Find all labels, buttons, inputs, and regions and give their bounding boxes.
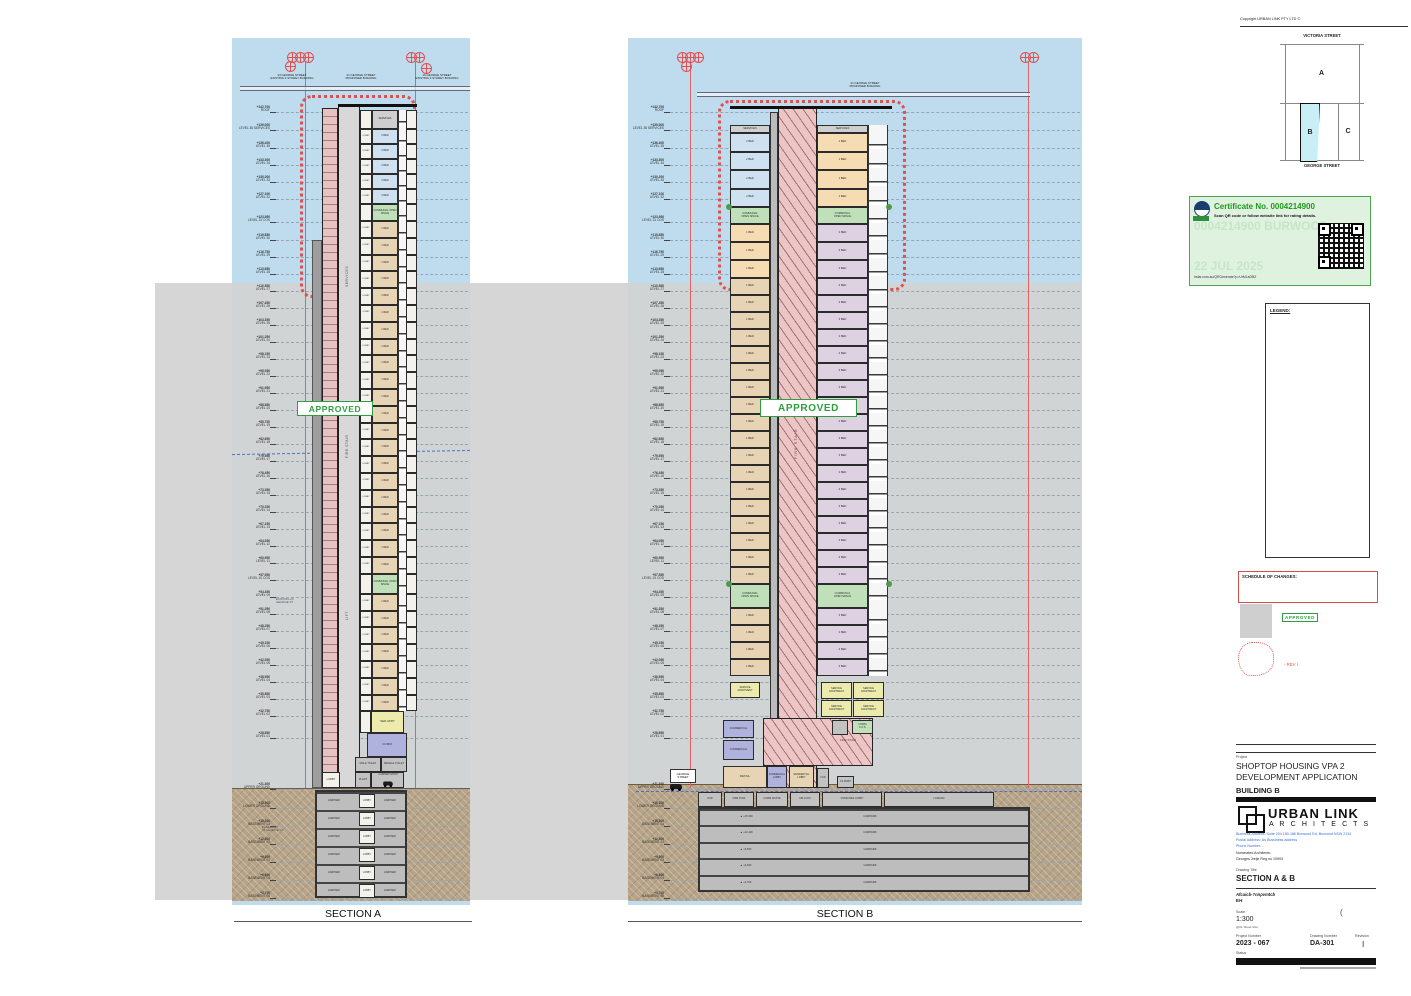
- certificate-subtitle: Scan QR code or follow website link for …: [1214, 213, 1316, 218]
- level-dash-line: [670, 738, 1080, 739]
- level-label: +48.250LEVEL 07: [236, 625, 270, 632]
- floor-row: 1 BED: [730, 499, 770, 516]
- outer-cell: [406, 695, 417, 712]
- tree-icon: [886, 204, 892, 210]
- carpark-label: CARPARK: [377, 796, 403, 807]
- status-label: Status: [1236, 951, 1246, 955]
- level-label: +9.500BASEMENT 03: [630, 856, 664, 863]
- outer-cell: [406, 129, 417, 144]
- lobby-label: LOBBY: [360, 513, 372, 515]
- unit-label: 1 BED: [372, 627, 398, 644]
- plot-stamp-line: [1300, 967, 1376, 969]
- level-tick: [664, 240, 670, 241]
- lobby-label: LOBBY: [360, 651, 372, 653]
- floor-row: 1 BED: [730, 242, 770, 260]
- outer-cell: [406, 144, 417, 159]
- basement-lobby: LOBBY: [359, 848, 375, 862]
- level-tick: [664, 148, 670, 149]
- schedule-of-changes: SCHEDULE OF CHANGES:: [1238, 571, 1378, 603]
- balcony-strip: [868, 380, 888, 397]
- tree-icon: [726, 581, 732, 587]
- level-tick: [664, 716, 670, 717]
- unit-label: 1 BED: [372, 423, 398, 440]
- architect-name: Georges Jreije Reg no 10993: [1236, 857, 1283, 861]
- outer-cell: [406, 644, 417, 661]
- level-tick: [270, 580, 276, 581]
- level-tick: [664, 580, 670, 581]
- balcony-strip: [868, 133, 888, 152]
- lobby-label: LOBBY: [360, 684, 372, 686]
- level-label: +21.300UPPER GROUND: [236, 783, 270, 790]
- floor-row: 1 BED: [730, 431, 770, 448]
- level-dash-line: [670, 789, 1080, 790]
- level-label: +73.350LEVEL 15: [630, 489, 664, 496]
- outer-cell: [406, 406, 417, 423]
- level-name: LEVEL 10 COS: [630, 577, 664, 581]
- level-tick: [270, 274, 276, 275]
- level-label: +113.650LEVEL 28: [630, 268, 664, 275]
- unit-label: 1 BED: [372, 288, 398, 305]
- level-label: +130.200LEVEL 33: [630, 176, 664, 183]
- core-wall: [770, 112, 778, 788]
- floor-row: 3 BED: [817, 346, 892, 363]
- level-tick: [270, 546, 276, 547]
- floor-row: LOBBY1 BED: [360, 271, 417, 288]
- level-name: LEVEL 09: [630, 594, 664, 598]
- level-name: LEVEL 03: [630, 696, 664, 700]
- level-tick: [664, 199, 670, 200]
- unit-label: 1 BED: [372, 523, 398, 540]
- floor-row: LOBBY1 BED: [360, 423, 417, 440]
- section-a-title: SECTION A: [234, 908, 472, 920]
- basement-slab: [700, 842, 1028, 844]
- floor-row: 1 BED: [730, 346, 770, 363]
- floor-row: 3 BED: [817, 465, 892, 482]
- unit-label: 1 BED: [372, 695, 398, 712]
- level-name: LEVEL 01: [630, 735, 664, 739]
- level-label: +64.050LEVEL 12: [630, 540, 664, 547]
- unit-label: 1 BED: [730, 448, 770, 465]
- floor-row: LOBBY1 BED: [360, 490, 417, 507]
- level-name: LEVEL 04: [630, 679, 664, 683]
- unit-label: 1 BED: [372, 355, 398, 372]
- unit-label: 3 BED: [817, 431, 868, 448]
- level-tick: [270, 240, 276, 241]
- carpark-label: CARPARK: [377, 832, 403, 843]
- file-code: Afcaicb-?nnpvmtcb: [1236, 892, 1275, 897]
- carpark-label: CARPARK: [830, 815, 910, 818]
- service-apartment-cell: SERVICE APARTMENT: [821, 682, 852, 699]
- revision-note: - REV I: [1284, 662, 1298, 667]
- level-label: +85.750LEVEL 19: [630, 421, 664, 428]
- level-tick: [664, 789, 670, 790]
- basement-rl-value: ▲ +6.600: [740, 865, 764, 868]
- level-name: LEVEL 36 SERVICES: [630, 127, 664, 131]
- floor-row: 3 BED: [817, 499, 892, 516]
- unit-label: 3 BED: [817, 363, 868, 380]
- lobby-label: LOBBY: [360, 362, 372, 364]
- key-plan-line: [1280, 160, 1364, 161]
- level-tick: [664, 222, 670, 223]
- level-label: +48.250LEVEL 07: [630, 625, 664, 632]
- street-dimension-band: [240, 86, 470, 91]
- level-label: +127.100LEVEL 32: [236, 193, 270, 200]
- lower-ground-cell: LOADING: [884, 792, 994, 807]
- floor-row: COMMUNAL OPEN SPACE: [730, 207, 770, 224]
- floor-row: LOBBY1 BED: [360, 557, 417, 574]
- level-tick: [664, 808, 670, 809]
- firm-name: URBAN LINK: [1268, 806, 1359, 821]
- floor-row: 3 BED: [817, 567, 892, 584]
- balcony-strip: [868, 207, 888, 224]
- floor-row: LOBBY1 BED: [360, 288, 417, 305]
- level-label: +101.250LEVEL 24: [630, 336, 664, 343]
- basement-lobby: LOBBY: [359, 794, 375, 808]
- unit-label: SERVICES: [730, 125, 770, 133]
- level-tick: [270, 427, 276, 428]
- level-label: +32.750LEVEL 02: [630, 710, 664, 717]
- floor-row: 1 BED: [730, 295, 770, 312]
- outer-cell: [406, 574, 417, 594]
- unit-label: 3 BED: [817, 465, 868, 482]
- sheet-size-note: @A1 Sheet Size: [1236, 926, 1258, 930]
- level-name: LEVEL 20: [630, 407, 664, 411]
- level-tick: [664, 495, 670, 496]
- outer-cell: [406, 439, 417, 456]
- level-label: +116.750LEVEL 29: [236, 251, 270, 258]
- carpark-label: CARPARK: [377, 868, 403, 879]
- unit-label: 1 BED: [730, 659, 770, 676]
- balcony-strip: [868, 625, 888, 642]
- floor-row: LOBBY1 BED: [360, 507, 417, 524]
- level-label: +21.300UPPER GROUND: [630, 783, 664, 790]
- floor-row: LOBBY1 BED: [360, 355, 417, 372]
- key-plan-street-bottom: GEORGE STREET: [1280, 163, 1364, 168]
- lobby-label: LOBBY: [360, 195, 372, 197]
- basement-lobby: LOBBY: [359, 812, 375, 826]
- level-tick: [270, 808, 276, 809]
- street-dimension-band: [697, 92, 1030, 97]
- key-plan-street-top: VICTORIA STREET: [1280, 33, 1364, 38]
- outer-cell: [406, 389, 417, 406]
- unit-label: 3 BED: [817, 329, 868, 346]
- level-name: LEVEL 15: [236, 492, 270, 496]
- outer-cell: [406, 423, 417, 440]
- level-label: +12.400BASEMENT 02: [236, 838, 270, 845]
- level-tick: [270, 130, 276, 131]
- level-label: +130.200LEVEL 33: [236, 176, 270, 183]
- unit-label: 3 BED: [817, 224, 868, 242]
- level-name: LEVEL 35: [236, 145, 270, 149]
- commercial-cell: COMMERCIAL: [723, 720, 754, 738]
- revision-table-rule: [1236, 752, 1376, 753]
- floor-row: 3 BED: [817, 659, 892, 676]
- level-name: LEVEL 34: [236, 162, 270, 166]
- level-label: +82.650LEVEL 18: [630, 438, 664, 445]
- street-segment-label: 19 GEORGE STREET EXISTING 3 STOREY BUILD…: [404, 74, 470, 81]
- unit-label: SERVICES: [817, 125, 868, 133]
- unit-label: 1 BED: [730, 533, 770, 550]
- copyright: Copyright URBAN LINK PTY LTD ©: [1240, 17, 1300, 22]
- level-tick: [664, 410, 670, 411]
- level-tick: [270, 359, 276, 360]
- level-tick: [270, 738, 276, 739]
- unit-label: 3 BED: [817, 448, 868, 465]
- level-name: BASEMENT 05: [236, 895, 270, 899]
- level-label: +98.150LEVEL 23: [236, 353, 270, 360]
- floor-row: 2 BED: [730, 152, 770, 171]
- outer-cell: [406, 523, 417, 540]
- fs-pump-cell: FS PUMP: [837, 776, 854, 788]
- level-name: LEVEL 12: [236, 543, 270, 547]
- unit-label: 1 BED: [817, 133, 868, 152]
- balcony-strip: [868, 659, 888, 676]
- lower-ground-cell: AIR LOCK: [790, 792, 820, 807]
- level-name: LEVEL 14: [630, 509, 664, 513]
- unit-label: 2 BED: [730, 152, 770, 171]
- lobby-label: LOBBY: [360, 600, 372, 602]
- unit-label: COMMUNAL OPEN SPACE: [730, 207, 770, 224]
- project-title-line1: SHOPTOP HOUSING VPA 2: [1236, 761, 1345, 771]
- unit-label: 1 BED: [372, 305, 398, 322]
- floor-row: LOBBY1 BED: [360, 540, 417, 557]
- basement-lobby: LOBBY: [359, 884, 375, 898]
- unit-label: 1 BED: [372, 389, 398, 406]
- unit-label: COMMUNAL OPEN SPACE: [817, 207, 868, 224]
- floor-row: COMMUNAL OPEN SPACE: [817, 207, 892, 224]
- level-tick: [270, 682, 276, 683]
- level-tick: [664, 165, 670, 166]
- unit-label: 1 BED: [730, 608, 770, 625]
- floor-row: LOBBY2 BED: [360, 144, 417, 159]
- lobby-label: LOBBY: [360, 479, 372, 481]
- lobby-label: LOBBY: [360, 261, 372, 263]
- balcony-strip: [868, 278, 888, 295]
- level-name: BASEMENT 04: [630, 877, 664, 881]
- level-name: BASEMENT 01: [630, 823, 664, 827]
- unit-label: 1 BED: [372, 507, 398, 524]
- nominated-architects-label: Nominated Architects:: [1236, 851, 1271, 855]
- lobby-label: LOBBY: [360, 227, 372, 229]
- level-tick: [664, 342, 670, 343]
- level-label: +51.350LEVEL 08: [630, 608, 664, 615]
- level-label: +95.050LEVEL 22: [630, 370, 664, 377]
- grid-bubble: [693, 52, 704, 63]
- level-tick: [664, 393, 670, 394]
- level-label: +12.400BASEMENT 02: [630, 838, 664, 845]
- level-name: BASEMENT 05: [630, 895, 664, 899]
- qr-code: [1318, 223, 1364, 269]
- level-name: LEVEL 26: [630, 305, 664, 309]
- project-label: Project: [1236, 755, 1247, 759]
- level-name: LEVEL 02: [236, 713, 270, 717]
- floor-row: 3 BED: [817, 363, 892, 380]
- unit-label: COMMUNAL OPEN SPACE: [817, 584, 868, 608]
- level-name: ROOF: [236, 109, 270, 113]
- floor-row: LOBBY1 BED: [360, 221, 417, 238]
- nathers-certificate: 0004214900 BURWOOD 22 JUL 2025 Certifica…: [1189, 196, 1371, 286]
- level-tick: [270, 478, 276, 479]
- unit-label: 3 BED: [817, 659, 868, 676]
- basement-box: CARPARKLOBBYCARPARKCARPARKLOBBYCARPARKCA…: [315, 790, 407, 898]
- level-tick: [664, 427, 670, 428]
- level-name: LEVEL 23: [236, 356, 270, 360]
- lobby-label: LOBBY: [360, 311, 372, 313]
- floor-row: 3 BED: [817, 608, 892, 625]
- unit-label: 1 BED: [730, 516, 770, 533]
- nathers-logo-banner: [1193, 216, 1209, 221]
- grid-bubble: [285, 61, 296, 72]
- level-tick: [664, 898, 670, 899]
- level-label: +9.500BASEMENT 03: [236, 856, 270, 863]
- firm-address2: Postal Address: As Bussiness address: [1236, 838, 1297, 842]
- unit-label: COMMUNAL OPEN SPACE: [730, 584, 770, 608]
- section-b-title: SECTION B: [790, 908, 900, 920]
- unit-label: COMMUNAL OPEN SPACE: [372, 204, 398, 221]
- service-apartment-cell: SERVICE APARTMENT: [730, 682, 760, 698]
- approved-mini-stamp: APPROVED: [1282, 613, 1318, 622]
- level-label: +119.850LEVEL 30: [236, 234, 270, 241]
- level-label: +116.750LEVEL 29: [630, 251, 664, 258]
- outer-cell: [406, 507, 417, 524]
- outer-cell: [406, 611, 417, 628]
- level-label: +28.850LEVEL 01: [236, 732, 270, 739]
- level-label: +64.050LEVEL 12: [236, 540, 270, 547]
- level-tick: [270, 325, 276, 326]
- bracket-mark: (: [1340, 908, 1343, 917]
- unit-label: 1 BED: [730, 625, 770, 642]
- level-name: LEVEL 22: [630, 373, 664, 377]
- unit-label: 1 BED: [372, 406, 398, 423]
- level-label: +15.300BASEMENT 01: [630, 820, 664, 827]
- drawing-title: SECTION A & B: [1236, 874, 1295, 883]
- outer-cell: [406, 288, 417, 305]
- unit-label: 3 BED: [817, 380, 868, 397]
- level-tick: [270, 199, 276, 200]
- level-tick: [664, 291, 670, 292]
- level-name: LEVEL 33: [630, 179, 664, 183]
- lobby-label: LOBBY: [360, 563, 372, 565]
- floor-row: 3 BED: [817, 329, 892, 346]
- lobby-label: LOBBY: [360, 345, 372, 347]
- level-name: LEVEL 19: [630, 424, 664, 428]
- level-tick: [270, 665, 276, 666]
- level-label: +136.400LEVEL 35: [236, 142, 270, 149]
- unit-label: 3 BED: [817, 516, 868, 533]
- level-name: LEVEL 06: [236, 645, 270, 649]
- floor-row: SERVICES: [730, 125, 770, 133]
- unit-label: 1 BED: [730, 499, 770, 516]
- level-name: LEVEL 26: [236, 305, 270, 309]
- level-name: LOWER GROUND: [236, 805, 270, 809]
- retail-cell: RETAIL: [723, 766, 767, 788]
- carpark-label: CARPARK: [319, 886, 349, 897]
- floor-row: COMMUNAL OPEN SPACE: [360, 204, 417, 221]
- fire-stair-label: FIRE STAIR: [794, 409, 798, 479]
- level-name: LEVEL 36 SERVICES: [236, 127, 270, 131]
- masonry-pier: [322, 108, 338, 788]
- level-tick: [664, 478, 670, 479]
- level-label: +110.550LEVEL 27: [236, 285, 270, 292]
- lobby-label: LOBBY: [360, 530, 372, 532]
- unit-label: 1 BED: [730, 431, 770, 448]
- level-label: +32.750LEVEL 02: [236, 710, 270, 717]
- lift-core: SERVICESFIRE STAIRLIFT: [338, 105, 360, 788]
- level-label: +139.000LEVEL 36 SERVICES: [236, 124, 270, 131]
- unit-label: 1 BED: [372, 456, 398, 473]
- level-name: LEVEL 07: [630, 628, 664, 632]
- level-name: LEVEL 06: [630, 645, 664, 649]
- firm-phone: Phone Number: -: [1236, 844, 1263, 848]
- fire-stair-core: FIRE STAIR: [778, 108, 817, 788]
- level-name: LEVEL 13: [630, 526, 664, 530]
- floor-row: 1 BED: [730, 312, 770, 329]
- unit-label: 1 BED: [730, 482, 770, 499]
- balcony-strip: [868, 482, 888, 499]
- existing-party-wall: [312, 240, 322, 788]
- floor-row: LOBBY1 BED: [360, 372, 417, 389]
- building-label: BUILDING B: [1236, 786, 1280, 795]
- urban-link-logo: [1246, 814, 1265, 833]
- carpark-entry-cell: CARPARK ENTRY: [371, 772, 404, 788]
- level-name: BASEMENT 02: [236, 841, 270, 845]
- level-name: LEVEL 03: [236, 696, 270, 700]
- level-label: +42.050LEVEL 05: [236, 659, 270, 666]
- floor-row: 1 BED: [730, 567, 770, 584]
- level-tick: [664, 112, 670, 113]
- outer-cell: [406, 221, 417, 238]
- level-tick: [270, 880, 276, 881]
- lobby-cell: LOBBY: [322, 772, 340, 788]
- outer-cell: [406, 355, 417, 372]
- level-label: +79.550LEVEL 17: [630, 455, 664, 462]
- podium-cell: [360, 711, 371, 733]
- level-name: LEVEL 11: [236, 560, 270, 564]
- level-label: +139.000LEVEL 36 SERVICES: [630, 124, 664, 131]
- lobby-label: LOBBY: [360, 150, 372, 152]
- unit-label: 1 BED: [730, 295, 770, 312]
- core-label: LIFT: [346, 586, 350, 646]
- outer-cell: [406, 490, 417, 507]
- balcony-strip: [868, 224, 888, 242]
- level-label: +127.100LEVEL 32: [630, 193, 664, 200]
- lobby-label: LOBBY: [360, 180, 372, 182]
- floor-row: 3 BED: [817, 312, 892, 329]
- level-tick: [270, 699, 276, 700]
- level-tick: [270, 112, 276, 113]
- floor-row: 1 BED: [730, 329, 770, 346]
- basement-lobby: LOBBY: [359, 830, 375, 844]
- lobby-label: LOBBY: [360, 463, 372, 465]
- level-tick: [270, 182, 276, 183]
- carpark-label: CARPARK: [377, 814, 403, 825]
- lower-ground-cell: FIRE TANK: [724, 792, 754, 807]
- existing-building-note: EXISTING 23 GEORGE ST: [276, 598, 306, 605]
- floor-row: 3 BED: [817, 431, 892, 448]
- roof-slab: [730, 106, 892, 109]
- floor-row: 1 BED: [730, 659, 770, 676]
- unit-label: 3 BED: [817, 346, 868, 363]
- level-name: LEVEL 21: [630, 390, 664, 394]
- key-plan-block-a: A: [1285, 44, 1358, 103]
- unit-label: 1 BED: [817, 189, 868, 208]
- level-name: LEVEL 25: [630, 322, 664, 326]
- floor-row: COMMUNAL OPEN SPACE: [360, 574, 417, 594]
- lobby-label: LOBBY: [360, 547, 372, 549]
- schedule-title: SCHEDULE OF CHANGES:: [1242, 574, 1377, 579]
- lower-ground-cell: COMM WASTE: [756, 792, 788, 807]
- floor-row: 2 BED: [730, 170, 770, 189]
